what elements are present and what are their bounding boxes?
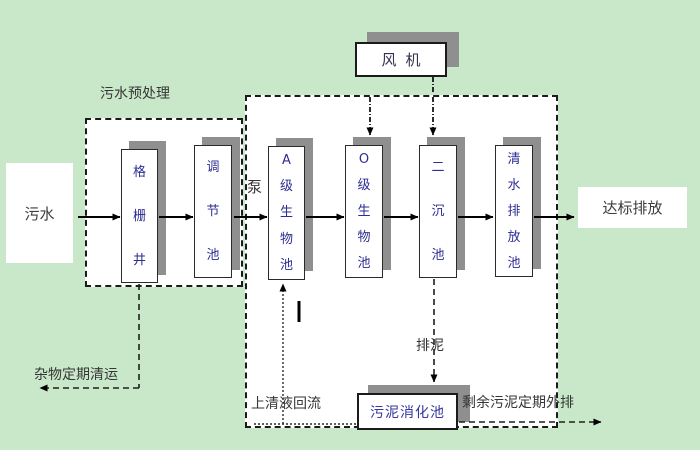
supernatant-return-label: 上清液回流 [251, 397, 321, 412]
grid-well-tank: 格栅井 [121, 149, 158, 283]
sludge-digester-box: 污泥消化池 [357, 393, 458, 430]
waste-removal-label: 杂物定期清运 [34, 368, 118, 383]
o-bio-tank: O级生物池 [345, 145, 383, 278]
blower-box: 风机 [355, 42, 447, 77]
blower-label: 风机 [372, 49, 429, 70]
regulating-tank: 调节池 [194, 145, 232, 278]
wastewater-process-flow-diagram: 污水预处理 污水 达标排放 风机 格栅井 调节池 A级生物池 O级生物池 二沉池… [0, 0, 700, 450]
grid-well-label: 格栅井 [122, 150, 157, 282]
pump-label: 泵 [247, 179, 262, 196]
sludge-discharge-label: 排泥 [416, 339, 444, 354]
influent-label: 污水 [24, 203, 54, 224]
secondary-sedimentation-tank: 二沉池 [419, 145, 457, 278]
effluent-label: 达标排放 [602, 197, 662, 218]
clearwater-discharge-tank: 清水排放池 [495, 145, 533, 277]
pretreatment-zone-label: 污水预处理 [100, 87, 170, 102]
a-bio-tank-label: A级生物池 [269, 147, 304, 279]
effluent-box: 达标排放 [578, 187, 687, 228]
secondary-tank-label: 二沉池 [420, 146, 456, 277]
influent-box: 污水 [6, 163, 73, 263]
o-bio-tank-label: O级生物池 [346, 146, 382, 277]
sludge-digester-label: 污泥消化池 [370, 402, 445, 422]
regulating-tank-label: 调节池 [195, 146, 231, 277]
excess-sludge-label: 剩余污泥定期外排 [462, 396, 574, 411]
a-bio-tank: A级生物池 [268, 146, 305, 280]
clearwater-tank-label: 清水排放池 [496, 146, 532, 276]
